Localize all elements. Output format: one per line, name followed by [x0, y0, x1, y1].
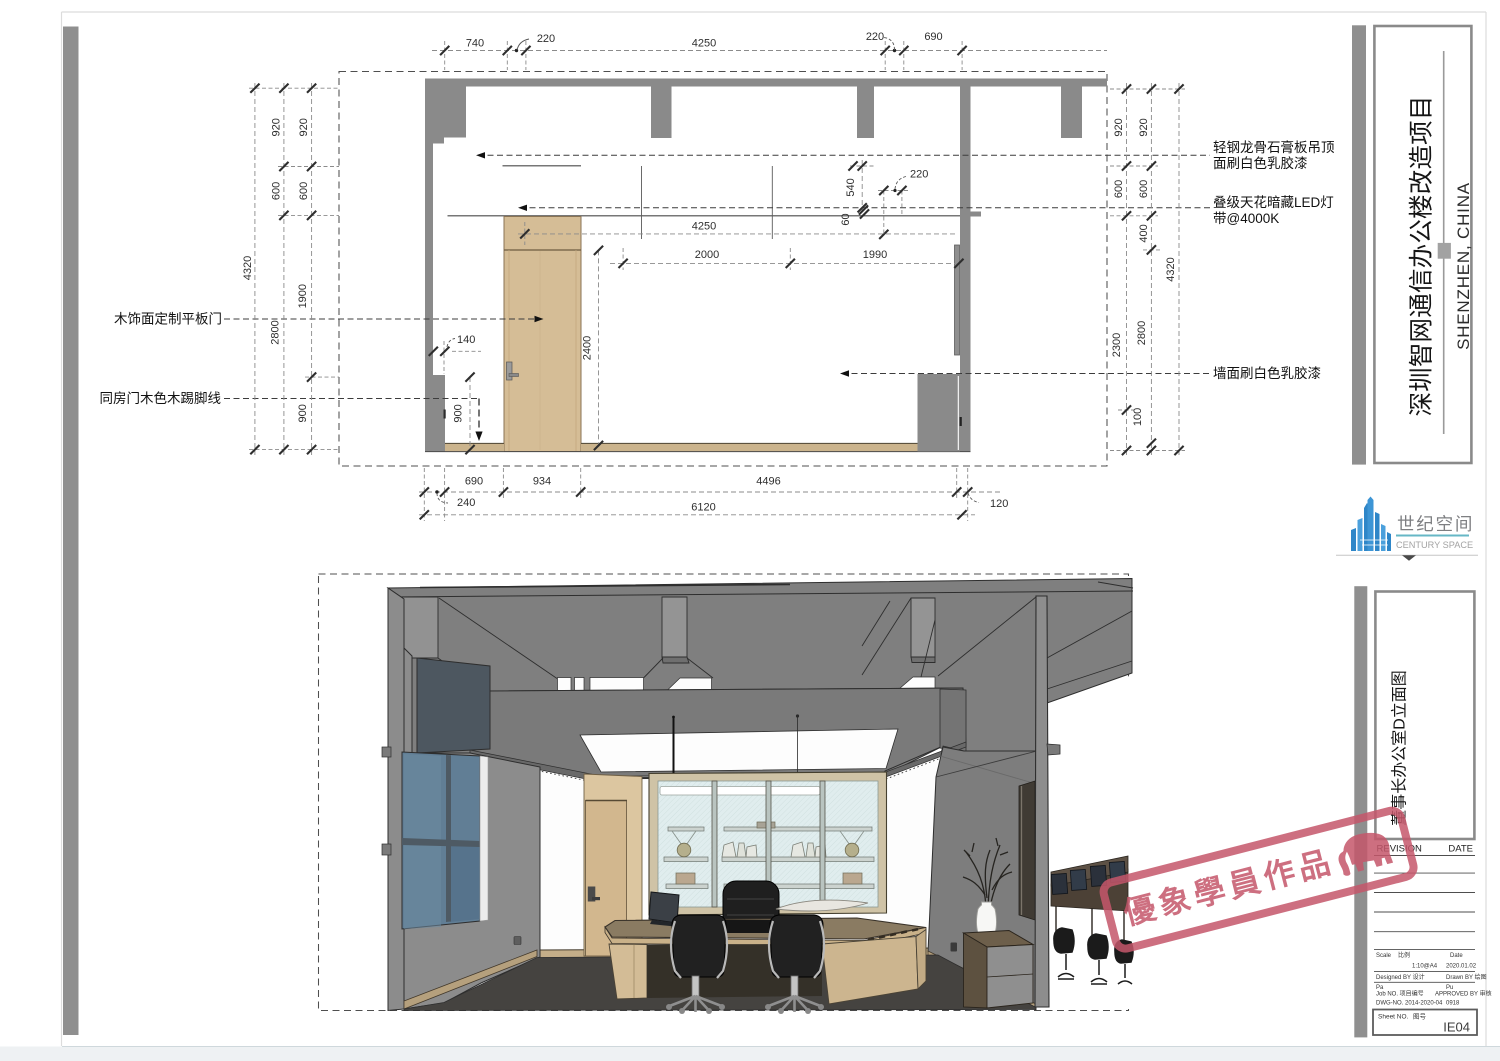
svg-text:Date: Date	[1450, 953, 1463, 959]
svg-text:120: 120	[990, 498, 1008, 510]
svg-text:600: 600	[1138, 180, 1150, 198]
svg-text:4496: 4496	[756, 476, 780, 488]
svg-text:2800: 2800	[1136, 321, 1148, 345]
svg-text:IE04: IE04	[1443, 1020, 1470, 1035]
svg-text:Pu: Pu	[1446, 985, 1453, 991]
svg-text:4320: 4320	[242, 256, 254, 280]
svg-text:APPROVED BY 审核: APPROVED BY 审核	[1435, 990, 1492, 998]
svg-text:同房门木色木踢脚线: 同房门木色木踢脚线	[100, 390, 222, 406]
svg-text:690: 690	[924, 31, 942, 43]
svg-text:Sheet NO.: Sheet NO.	[1378, 1014, 1409, 1021]
svg-text:0918: 0918	[1446, 1001, 1460, 1007]
svg-text:140: 140	[457, 334, 475, 346]
svg-text:220: 220	[910, 169, 928, 181]
svg-text:2020.01.02: 2020.01.02	[1446, 964, 1477, 970]
svg-text:6120: 6120	[691, 502, 715, 514]
svg-text:Job NO. 项目编号: Job NO. 项目编号	[1376, 990, 1424, 998]
svg-text:60: 60	[840, 213, 852, 225]
svg-text:木饰面定制平板门: 木饰面定制平板门	[114, 312, 222, 327]
svg-text:Designed BY 设计: Designed BY 设计	[1376, 973, 1425, 981]
svg-text:220: 220	[866, 31, 884, 43]
svg-text:920: 920	[1138, 118, 1150, 136]
svg-text:900: 900	[453, 404, 465, 422]
svg-text:600: 600	[1113, 180, 1125, 198]
svg-text:900: 900	[297, 404, 309, 422]
svg-text:100: 100	[1132, 408, 1144, 426]
svg-text:董事长办公室D立面图: 董事长办公室D立面图	[1391, 670, 1409, 826]
svg-text:600: 600	[298, 182, 310, 200]
svg-text:240: 240	[457, 497, 475, 509]
svg-text:带@4000K: 带@4000K	[1213, 211, 1279, 226]
svg-text:540: 540	[845, 178, 857, 196]
svg-text:1990: 1990	[863, 249, 887, 261]
svg-text:920: 920	[298, 118, 310, 136]
svg-text:2000: 2000	[695, 249, 719, 261]
svg-text:比例: 比例	[1398, 951, 1410, 959]
svg-text:2300: 2300	[1111, 333, 1123, 357]
svg-text:DWG-NO. 2014-2020-04: DWG-NO. 2014-2020-04	[1376, 1001, 1443, 1007]
svg-text:Scale: Scale	[1376, 953, 1392, 959]
svg-text:1:10@A4: 1:10@A4	[1412, 964, 1438, 970]
svg-text:DATE: DATE	[1448, 844, 1473, 855]
svg-text:920: 920	[1113, 118, 1125, 136]
svg-text:SHENZHEN, CHINA: SHENZHEN, CHINA	[1454, 182, 1473, 350]
svg-text:740: 740	[466, 38, 484, 50]
svg-text:4250: 4250	[692, 38, 716, 50]
svg-text:920: 920	[271, 118, 283, 136]
svg-text:4320: 4320	[1165, 257, 1177, 281]
svg-text:1900: 1900	[297, 284, 309, 308]
svg-text:400: 400	[1138, 224, 1150, 242]
svg-text:4250: 4250	[692, 221, 716, 233]
svg-text:220: 220	[537, 33, 555, 45]
svg-text:深圳智网通信办公楼改造项目: 深圳智网通信办公楼改造项目	[1408, 95, 1436, 416]
svg-text:934: 934	[533, 476, 551, 488]
svg-text:Drawn BY 绘图: Drawn BY 绘图	[1446, 973, 1487, 981]
svg-text:Pa: Pa	[1376, 985, 1384, 991]
svg-text:2800: 2800	[270, 320, 282, 344]
svg-text:图号: 图号	[1413, 1013, 1427, 1021]
svg-text:2400: 2400	[582, 336, 594, 360]
svg-text:CENTURY SPACE: CENTURY SPACE	[1396, 540, 1473, 550]
svg-text:轻钢龙骨石膏板吊顶: 轻钢龙骨石膏板吊顶	[1213, 139, 1335, 155]
svg-text:600: 600	[271, 182, 283, 200]
svg-text:世纪空间: 世纪空间	[1397, 514, 1474, 534]
svg-text:墙面刷白色乳胶漆: 墙面刷白色乳胶漆	[1213, 365, 1321, 381]
svg-text:叠级天花暗藏LED灯: 叠级天花暗藏LED灯	[1213, 195, 1334, 210]
svg-text:面刷白色乳胶漆: 面刷白色乳胶漆	[1213, 155, 1308, 171]
svg-text:690: 690	[465, 476, 483, 488]
